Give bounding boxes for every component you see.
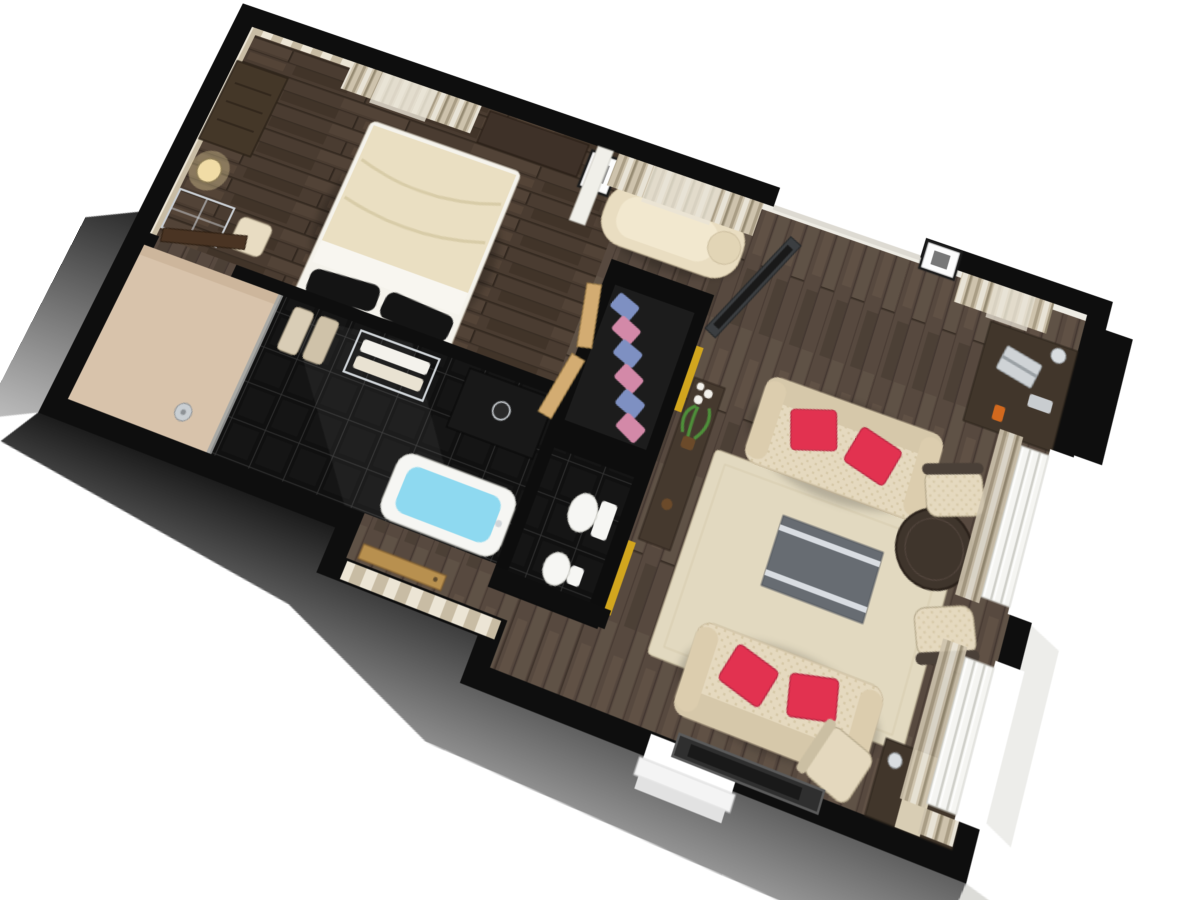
chair-back [922, 463, 984, 475]
chair [922, 463, 987, 517]
red-pillow [787, 673, 839, 723]
chair-seat [924, 470, 985, 517]
floorplan-3d [0, 3, 1123, 900]
red-pillow [791, 409, 837, 451]
floorplan-svg [0, 3, 1123, 900]
render-canvas [0, 0, 1184, 900]
